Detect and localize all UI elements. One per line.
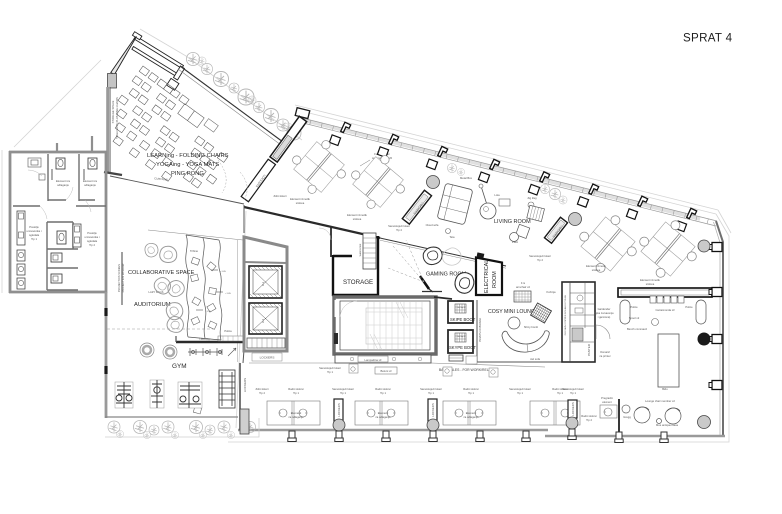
svg-text:Spool x2: Spool x2: [629, 316, 640, 320]
svg-text:Tip 1: Tip 1: [380, 391, 386, 395]
svg-text:ROOM: ROOM: [492, 271, 498, 288]
svg-text:Elementi: Elementi: [291, 411, 302, 415]
svg-text:ogledala: ogledala: [87, 239, 98, 243]
svg-text:Elementi: Elementi: [466, 411, 477, 415]
svg-text:Tip 1: Tip 1: [340, 391, 346, 395]
svg-text:i gamiona): i gamiona): [598, 315, 611, 319]
svg-text:+1.35: +1.35: [205, 311, 211, 313]
svg-text:PROJECTION WINDOW: PROJECTION WINDOW: [121, 263, 125, 292]
svg-text:element: element: [602, 400, 612, 404]
svg-text:(ujka za kacenje: (ujka za kacenje: [594, 311, 614, 315]
svg-text:Elementi između: Elementi između: [347, 213, 367, 217]
svg-text:Postolje: Postolje: [87, 231, 97, 235]
svg-text:Samostojeći lokeri: Samostojeći lokeri: [332, 387, 354, 391]
svg-text:Shiny bomb: Shiny bomb: [524, 325, 539, 329]
svg-text:GYM: GYM: [172, 363, 187, 370]
svg-text:umivaonika i: umivaonika i: [27, 229, 42, 233]
svg-text:U-1: U-1: [261, 281, 265, 286]
svg-text:Radni stolovi: Radni stolovi: [288, 387, 304, 391]
svg-text:Beluni x3: Beluni x3: [380, 369, 392, 373]
svg-text:+1.65: +1.65: [225, 293, 231, 295]
svg-text:Samostojeći lokeri: Samostojeći lokeri: [319, 366, 341, 370]
svg-text:Elementi između: Elementi između: [640, 278, 660, 282]
svg-text:Tribine: Tribine: [190, 249, 199, 253]
svg-text:Lampadina x3: Lampadina x3: [365, 358, 382, 362]
svg-text:za odlaganje: za odlaganje: [288, 415, 304, 419]
svg-text:LEARNing - FOLDING CHAIRS: LEARNing - FOLDING CHAIRS: [147, 153, 229, 159]
svg-text:DOSTAVNI COPPER DOUBLE KITCHEN: DOSTAVNI COPPER DOUBLE KITCHEN: [564, 294, 567, 335]
svg-text:Osmarić: Osmarić: [600, 350, 611, 354]
svg-text:On Sp 1: On Sp 1: [457, 307, 466, 309]
svg-text:Zidni lokeri: Zidni lokeri: [256, 387, 269, 391]
svg-text:Samostojeći lokeri: Samostojeći lokeri: [388, 224, 410, 228]
svg-text:Elementi za: Elementi za: [56, 179, 71, 183]
svg-text:Kuhinja: Kuhinja: [547, 290, 556, 294]
svg-text:Cloud sofa: Cloud sofa: [426, 223, 439, 227]
svg-text:Samostojeći lokeri: Samostojeći lokeri: [420, 387, 442, 391]
svg-text:Zidni lokeri: Zidni lokeri: [274, 194, 287, 198]
svg-text:YOGAing - YOGA MATS: YOGAing - YOGA MATS: [156, 162, 219, 168]
svg-text:It is: It is: [521, 281, 526, 285]
svg-text:LIVING ROOM: LIVING ROOM: [494, 219, 531, 225]
svg-text:PING PONG: PING PONG: [171, 171, 204, 177]
svg-text:Tip 2: Tip 2: [396, 228, 402, 232]
svg-text:Plant: Plant: [512, 240, 518, 244]
svg-text:Tip 1: Tip 1: [428, 391, 434, 395]
svg-text:Zig Zag: Zig Zag: [527, 196, 537, 200]
svg-text:odlaganje: odlaganje: [84, 183, 96, 187]
svg-text:Polica: Polica: [224, 329, 232, 333]
svg-text:Tip 2: Tip 2: [537, 258, 543, 262]
svg-text:Lounge chair member x2: Lounge chair member x2: [645, 399, 675, 403]
svg-text:Tip 1: Tip 1: [293, 391, 299, 395]
svg-text:Radni stolovi: Radni stolovi: [463, 387, 479, 391]
svg-text:STORAGE: STORAGE: [343, 279, 373, 286]
svg-text:stolova: stolova: [296, 201, 305, 205]
svg-text:LOCKERS: LOCKERS: [243, 378, 247, 392]
svg-text:Elementi: Elementi: [378, 411, 389, 415]
svg-text:SKIPE BOOT: SKIPE BOOT: [450, 317, 476, 322]
svg-text:Police: Police: [630, 305, 638, 309]
svg-text:armchair x2: armchair x2: [516, 285, 531, 289]
svg-text:Tip 1: Tip 1: [517, 391, 523, 395]
svg-text:Jaz sofa: Jaz sofa: [530, 357, 541, 361]
svg-text:stolova: stolova: [353, 217, 362, 221]
svg-text:Postolje: Postolje: [29, 225, 39, 229]
svg-text:STORAGE SPACE: STORAGE SPACE: [111, 100, 115, 123]
svg-text:Samostojeći lokeri: Samostojeći lokeri: [529, 254, 551, 258]
svg-text:Moe antique biasa: Moe antique biasa: [656, 423, 678, 427]
svg-text:Carraimonda x3: Carraimonda x3: [655, 308, 675, 312]
svg-text:LOCKERS: LOCKERS: [337, 403, 341, 417]
svg-text:Bidu: Bidu: [662, 387, 668, 391]
svg-text:Samostojeći lokeri: Samostojeći lokeri: [509, 387, 531, 391]
svg-text:Tip 1: Tip 1: [327, 370, 333, 374]
svg-text:LOCKERS: LOCKERS: [260, 356, 275, 360]
svg-text:COLLABORATIVE SPACE: COLLABORATIVE SPACE: [128, 270, 195, 276]
svg-text:Police: Police: [685, 305, 693, 309]
svg-text:LOCKERS: LOCKERS: [571, 402, 575, 416]
svg-text:WARDROBE: WARDROBE: [359, 243, 362, 256]
svg-text:PANTER: PANTER: [587, 343, 591, 356]
svg-text:Elementi za: Elementi za: [83, 179, 98, 183]
svg-text:Tip 2: Tip 2: [259, 391, 265, 395]
svg-text:umivaonika i: umivaonika i: [85, 235, 100, 239]
svg-text:ogledala: ogledala: [29, 233, 40, 237]
svg-text:za odlaganje: za odlaganje: [463, 415, 479, 419]
svg-text:za odlaganje: za odlaganje: [375, 415, 391, 419]
svg-text:Tip 1: Tip 1: [468, 391, 474, 395]
svg-text:On Sp 1: On Sp 1: [457, 336, 466, 338]
svg-text:+1.65: +1.65: [220, 271, 226, 273]
svg-text:Metal Box: Metal Box: [460, 176, 473, 180]
svg-text:Radni stolovi: Radni stolovi: [581, 414, 597, 418]
svg-text:Tip 1: Tip 1: [31, 237, 37, 241]
svg-text:Radni stolovi: Radni stolovi: [375, 387, 391, 391]
svg-text:YOGA MATS PLUS PING CHAIRS: YOGA MATS PLUS PING CHAIRS: [115, 97, 119, 139]
svg-text:PRIVATNI ODBRAVAK: PRIVATNI ODBRAVAK: [479, 317, 482, 342]
svg-text:Gardender: Gardender: [598, 307, 611, 311]
svg-text:SKYPE BOOT: SKYPE BOOT: [449, 345, 476, 350]
svg-text:SPRAT 4: SPRAT 4: [683, 32, 733, 45]
svg-text:Elementi između: Elementi između: [586, 264, 606, 268]
svg-text:U-2: U-2: [261, 318, 265, 323]
svg-text:Lota: Lota: [494, 193, 500, 197]
svg-text:Elementi između: Elementi između: [290, 197, 310, 201]
svg-text:Bench commax2: Bench commax2: [627, 327, 648, 331]
svg-text:Tip 2: Tip 2: [586, 418, 592, 422]
svg-text:Gregg: Gregg: [623, 415, 631, 419]
svg-text:ELECTRICAL: ELECTRICAL: [484, 260, 490, 293]
svg-text:Tip 1: Tip 1: [570, 391, 576, 395]
svg-text:stolova: stolova: [646, 282, 655, 286]
svg-text:odlaganje: odlaganje: [57, 183, 69, 187]
svg-text:Pregradni: Pregradni: [601, 396, 613, 400]
svg-text:Tip 1: Tip 1: [557, 391, 563, 395]
svg-text:PROJECTION SCREEN: PROJECTION SCREEN: [117, 264, 121, 292]
svg-text:AUDITORIUM: AUDITORIUM: [134, 302, 171, 308]
svg-text:LOCKERS: LOCKERS: [431, 403, 435, 417]
svg-text:za printer: za printer: [599, 354, 610, 358]
svg-text:Samostojeći lokeri: Samostojeći lokeri: [562, 387, 584, 391]
svg-text:stolova: stolova: [592, 268, 601, 272]
svg-text:Tip 2: Tip 2: [89, 243, 95, 247]
svg-text:Teta: Teta: [449, 235, 455, 239]
